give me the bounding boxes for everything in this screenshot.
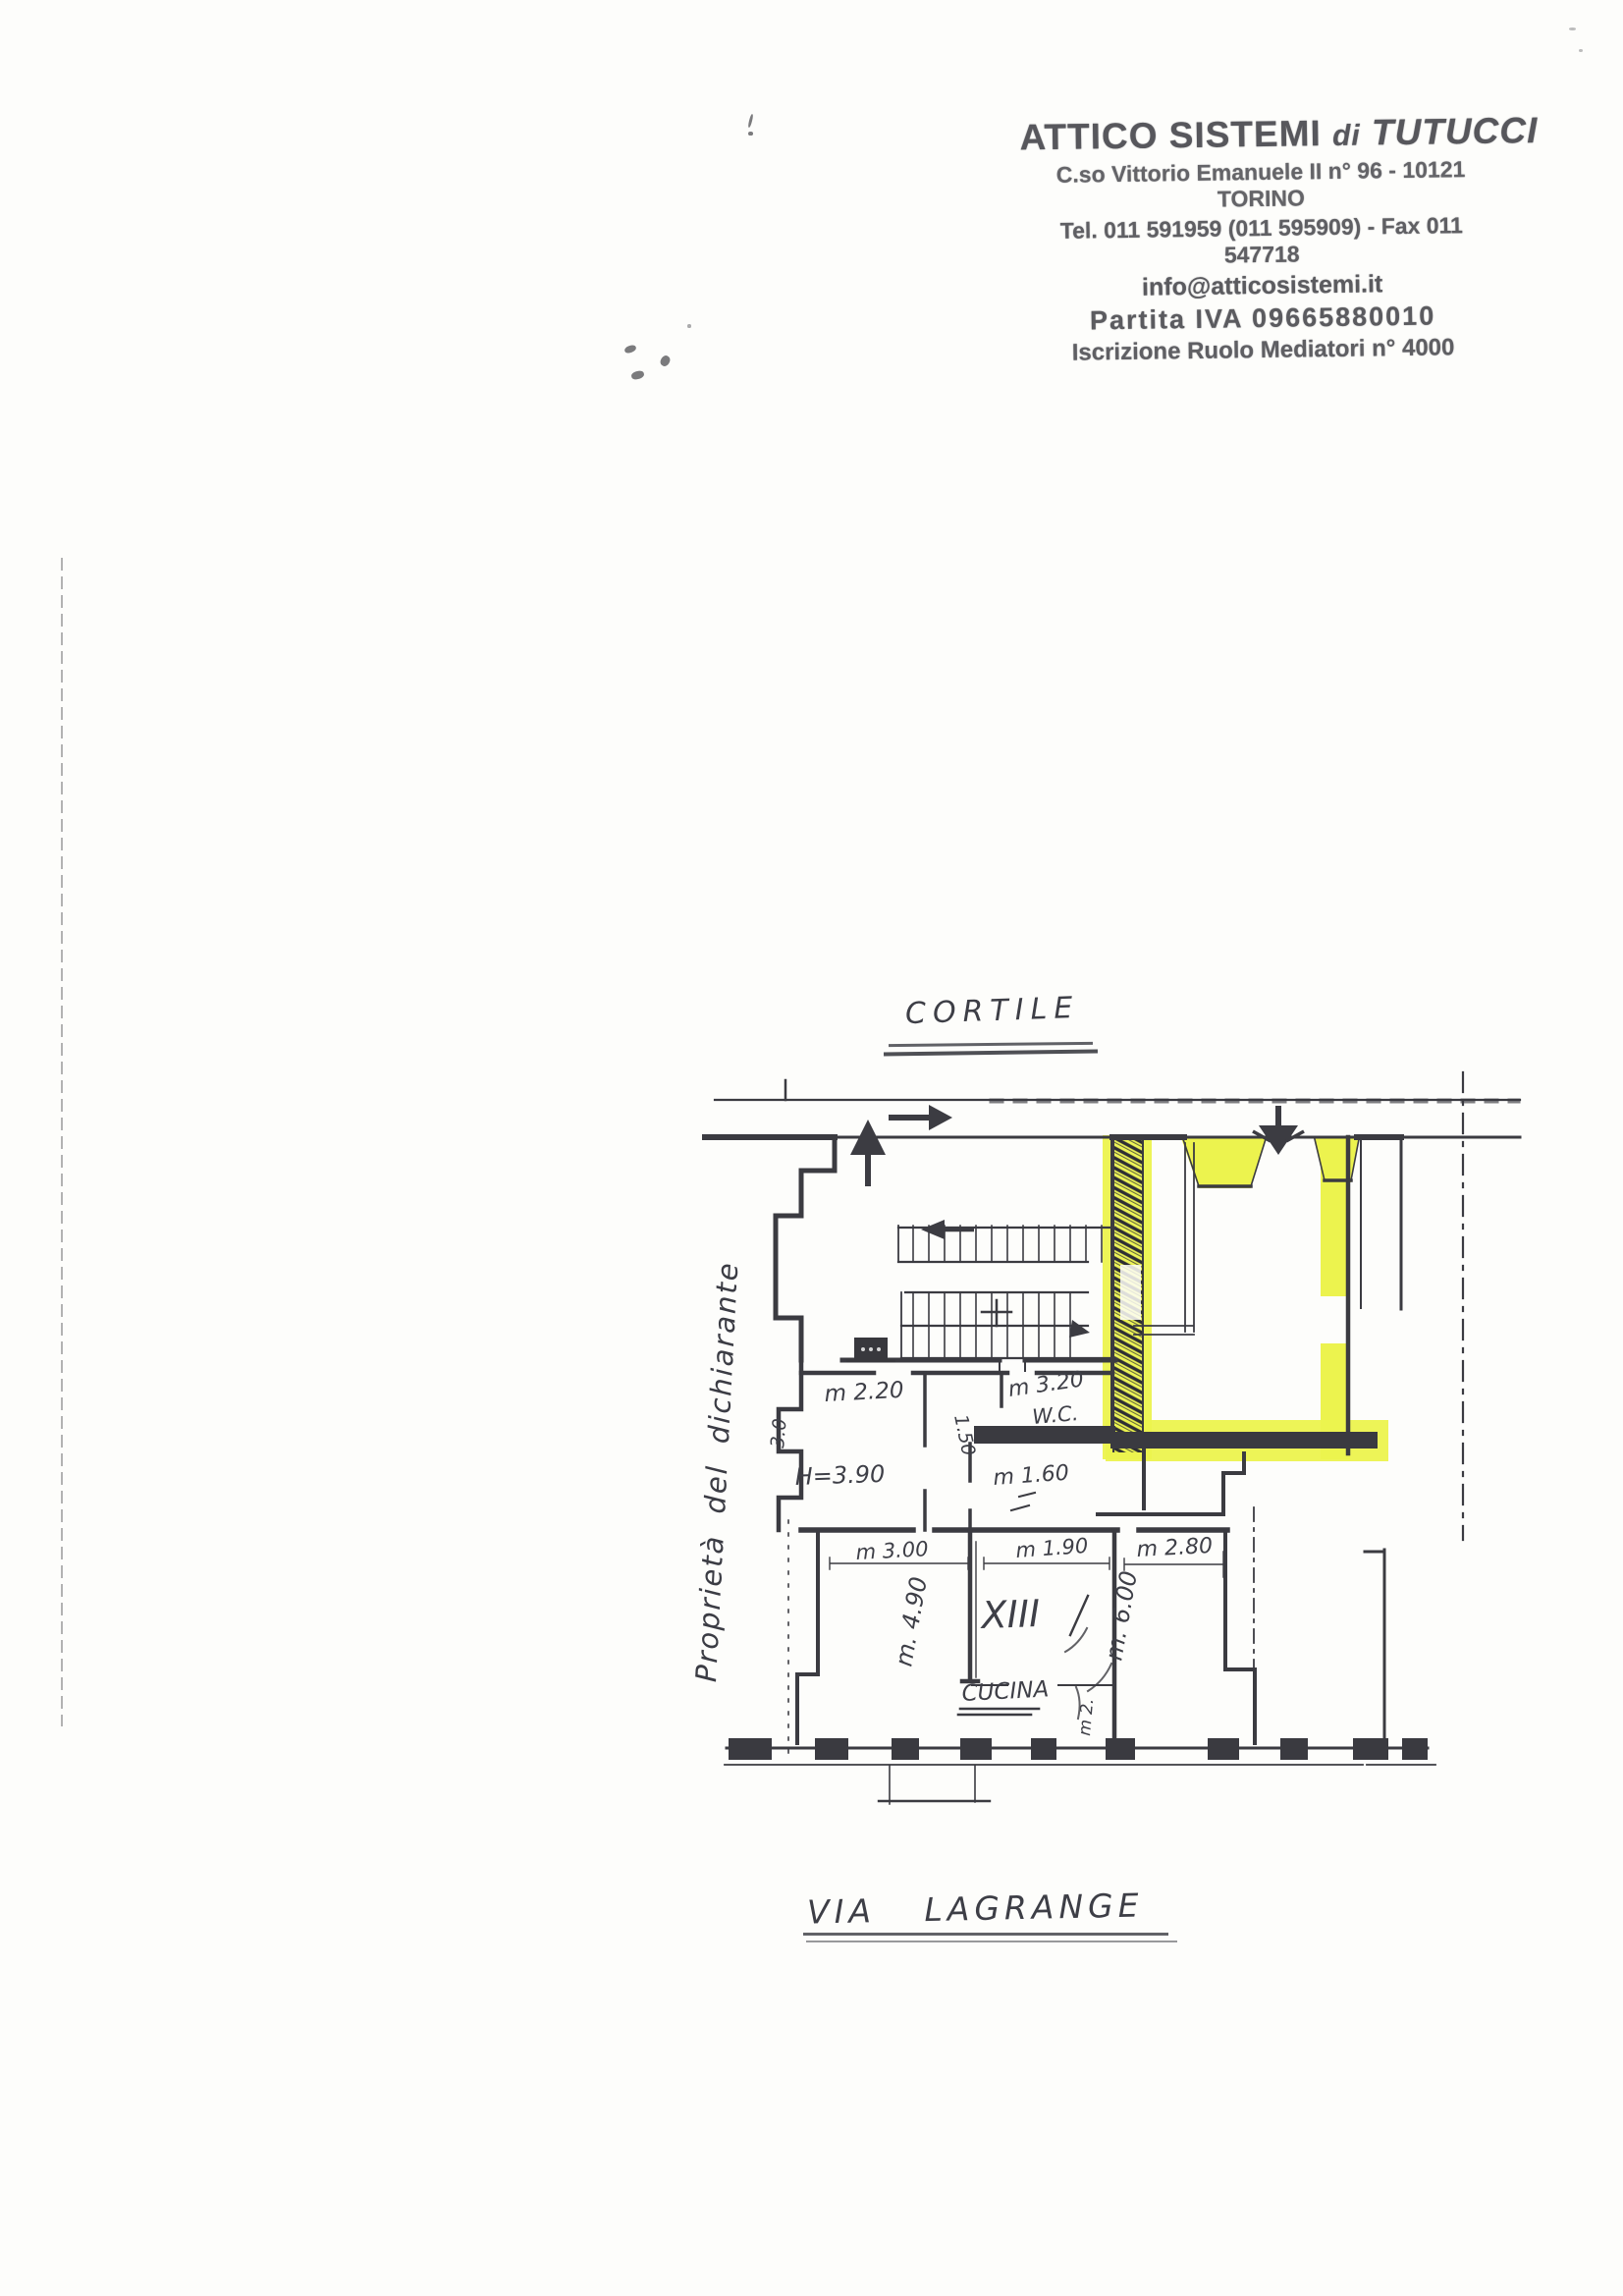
up-arrow bbox=[850, 1120, 886, 1186]
stamp-address: C.so Vittorio Emanuele II n° 96 - 10121 … bbox=[1020, 156, 1502, 216]
agency-stamp: ATTICO SISTEMI di TUTUCCI C.so Vittorio … bbox=[1019, 111, 1504, 368]
ink-speck bbox=[630, 369, 645, 380]
ink-speck bbox=[659, 354, 672, 367]
dim-m220-label: m 2.20 bbox=[824, 1378, 904, 1407]
dim-h390-label: H=3.90 bbox=[794, 1460, 886, 1491]
ink-speck bbox=[687, 324, 691, 328]
ink-speck bbox=[1569, 27, 1576, 30]
stamp-company-name: ATTICO SISTEMI bbox=[1019, 113, 1322, 157]
room-wc-label: W.C. bbox=[1031, 1401, 1079, 1429]
dim-150-label: 1.50 bbox=[949, 1412, 979, 1457]
scanned-page: ATTICO SISTEMI di TUTUCCI C.so Vittorio … bbox=[0, 0, 1623, 2296]
courtyard-label: CORTILE bbox=[904, 991, 1079, 1031]
dim-m190-label: m 1.90 bbox=[1015, 1534, 1089, 1562]
street-label: VIA LAGRANGE bbox=[807, 1886, 1144, 1931]
right-arrow bbox=[889, 1105, 952, 1130]
page-edge-artifact bbox=[61, 558, 63, 1726]
dim-m600-label: m. 6.00 bbox=[1100, 1569, 1143, 1664]
dim-m300-label: m 3.00 bbox=[855, 1537, 929, 1564]
kitchen-label: CUCINA bbox=[961, 1676, 1050, 1707]
ink-speck bbox=[748, 132, 753, 136]
unit-highlight bbox=[1103, 1135, 1388, 1461]
dim-30-label: 3.0 bbox=[767, 1417, 791, 1449]
floor-plan-drawing: m 2.20 3.0 H=3.90 1.50 m 1.60 m 3.20 W.C… bbox=[677, 1061, 1522, 1822]
ink-speck bbox=[1579, 49, 1583, 52]
stamp-register: Iscrizione Ruolo Mediatori n° 4000 bbox=[1022, 334, 1503, 368]
ink-speck bbox=[747, 114, 753, 128]
stamp-owner-name: TUTUCCI bbox=[1372, 110, 1539, 152]
elevator-block bbox=[846, 1338, 895, 1361]
courtyard-underline bbox=[889, 1042, 1093, 1047]
stair-flight-arrow bbox=[921, 1220, 1090, 1338]
street-underline bbox=[803, 1933, 1168, 1936]
stamp-vat: Partita IVA 09665880010 bbox=[1022, 301, 1503, 338]
unit-number-label: XIII bbox=[979, 1592, 1041, 1637]
dim-m160-label: m 1.60 bbox=[993, 1461, 1070, 1491]
hatched-wall bbox=[1113, 1138, 1143, 1452]
dim-m490-label: m. 4.90 bbox=[890, 1575, 933, 1669]
courtyard-underline bbox=[884, 1049, 1098, 1056]
dim-m280-label: m 2.80 bbox=[1136, 1534, 1214, 1562]
ink-speck bbox=[623, 344, 637, 355]
dim-m2-label: m 2. bbox=[1075, 1698, 1098, 1737]
stamp-di: di bbox=[1332, 120, 1361, 152]
dim-m320-label: m 3.20 bbox=[1006, 1367, 1085, 1402]
stamp-company-line: ATTICO SISTEMI di TUTUCCI bbox=[1019, 111, 1501, 159]
stamp-email: info@atticosistemi.it bbox=[1021, 269, 1502, 304]
stamp-phone-fax: Tel. 011 591959 (011 595909) - Fax 011 5… bbox=[1021, 212, 1503, 272]
street-underline bbox=[806, 1941, 1177, 1942]
